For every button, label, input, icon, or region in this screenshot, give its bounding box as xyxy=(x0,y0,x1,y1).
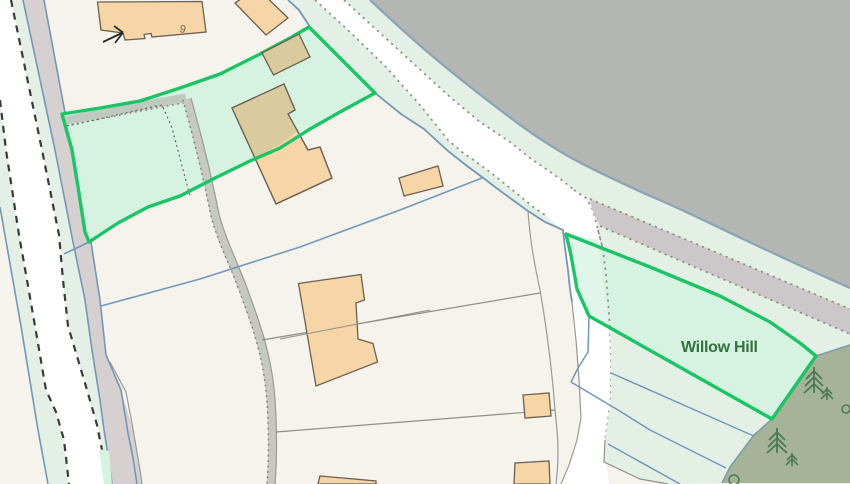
svg-text:Willow Hill: Willow Hill xyxy=(681,339,758,356)
